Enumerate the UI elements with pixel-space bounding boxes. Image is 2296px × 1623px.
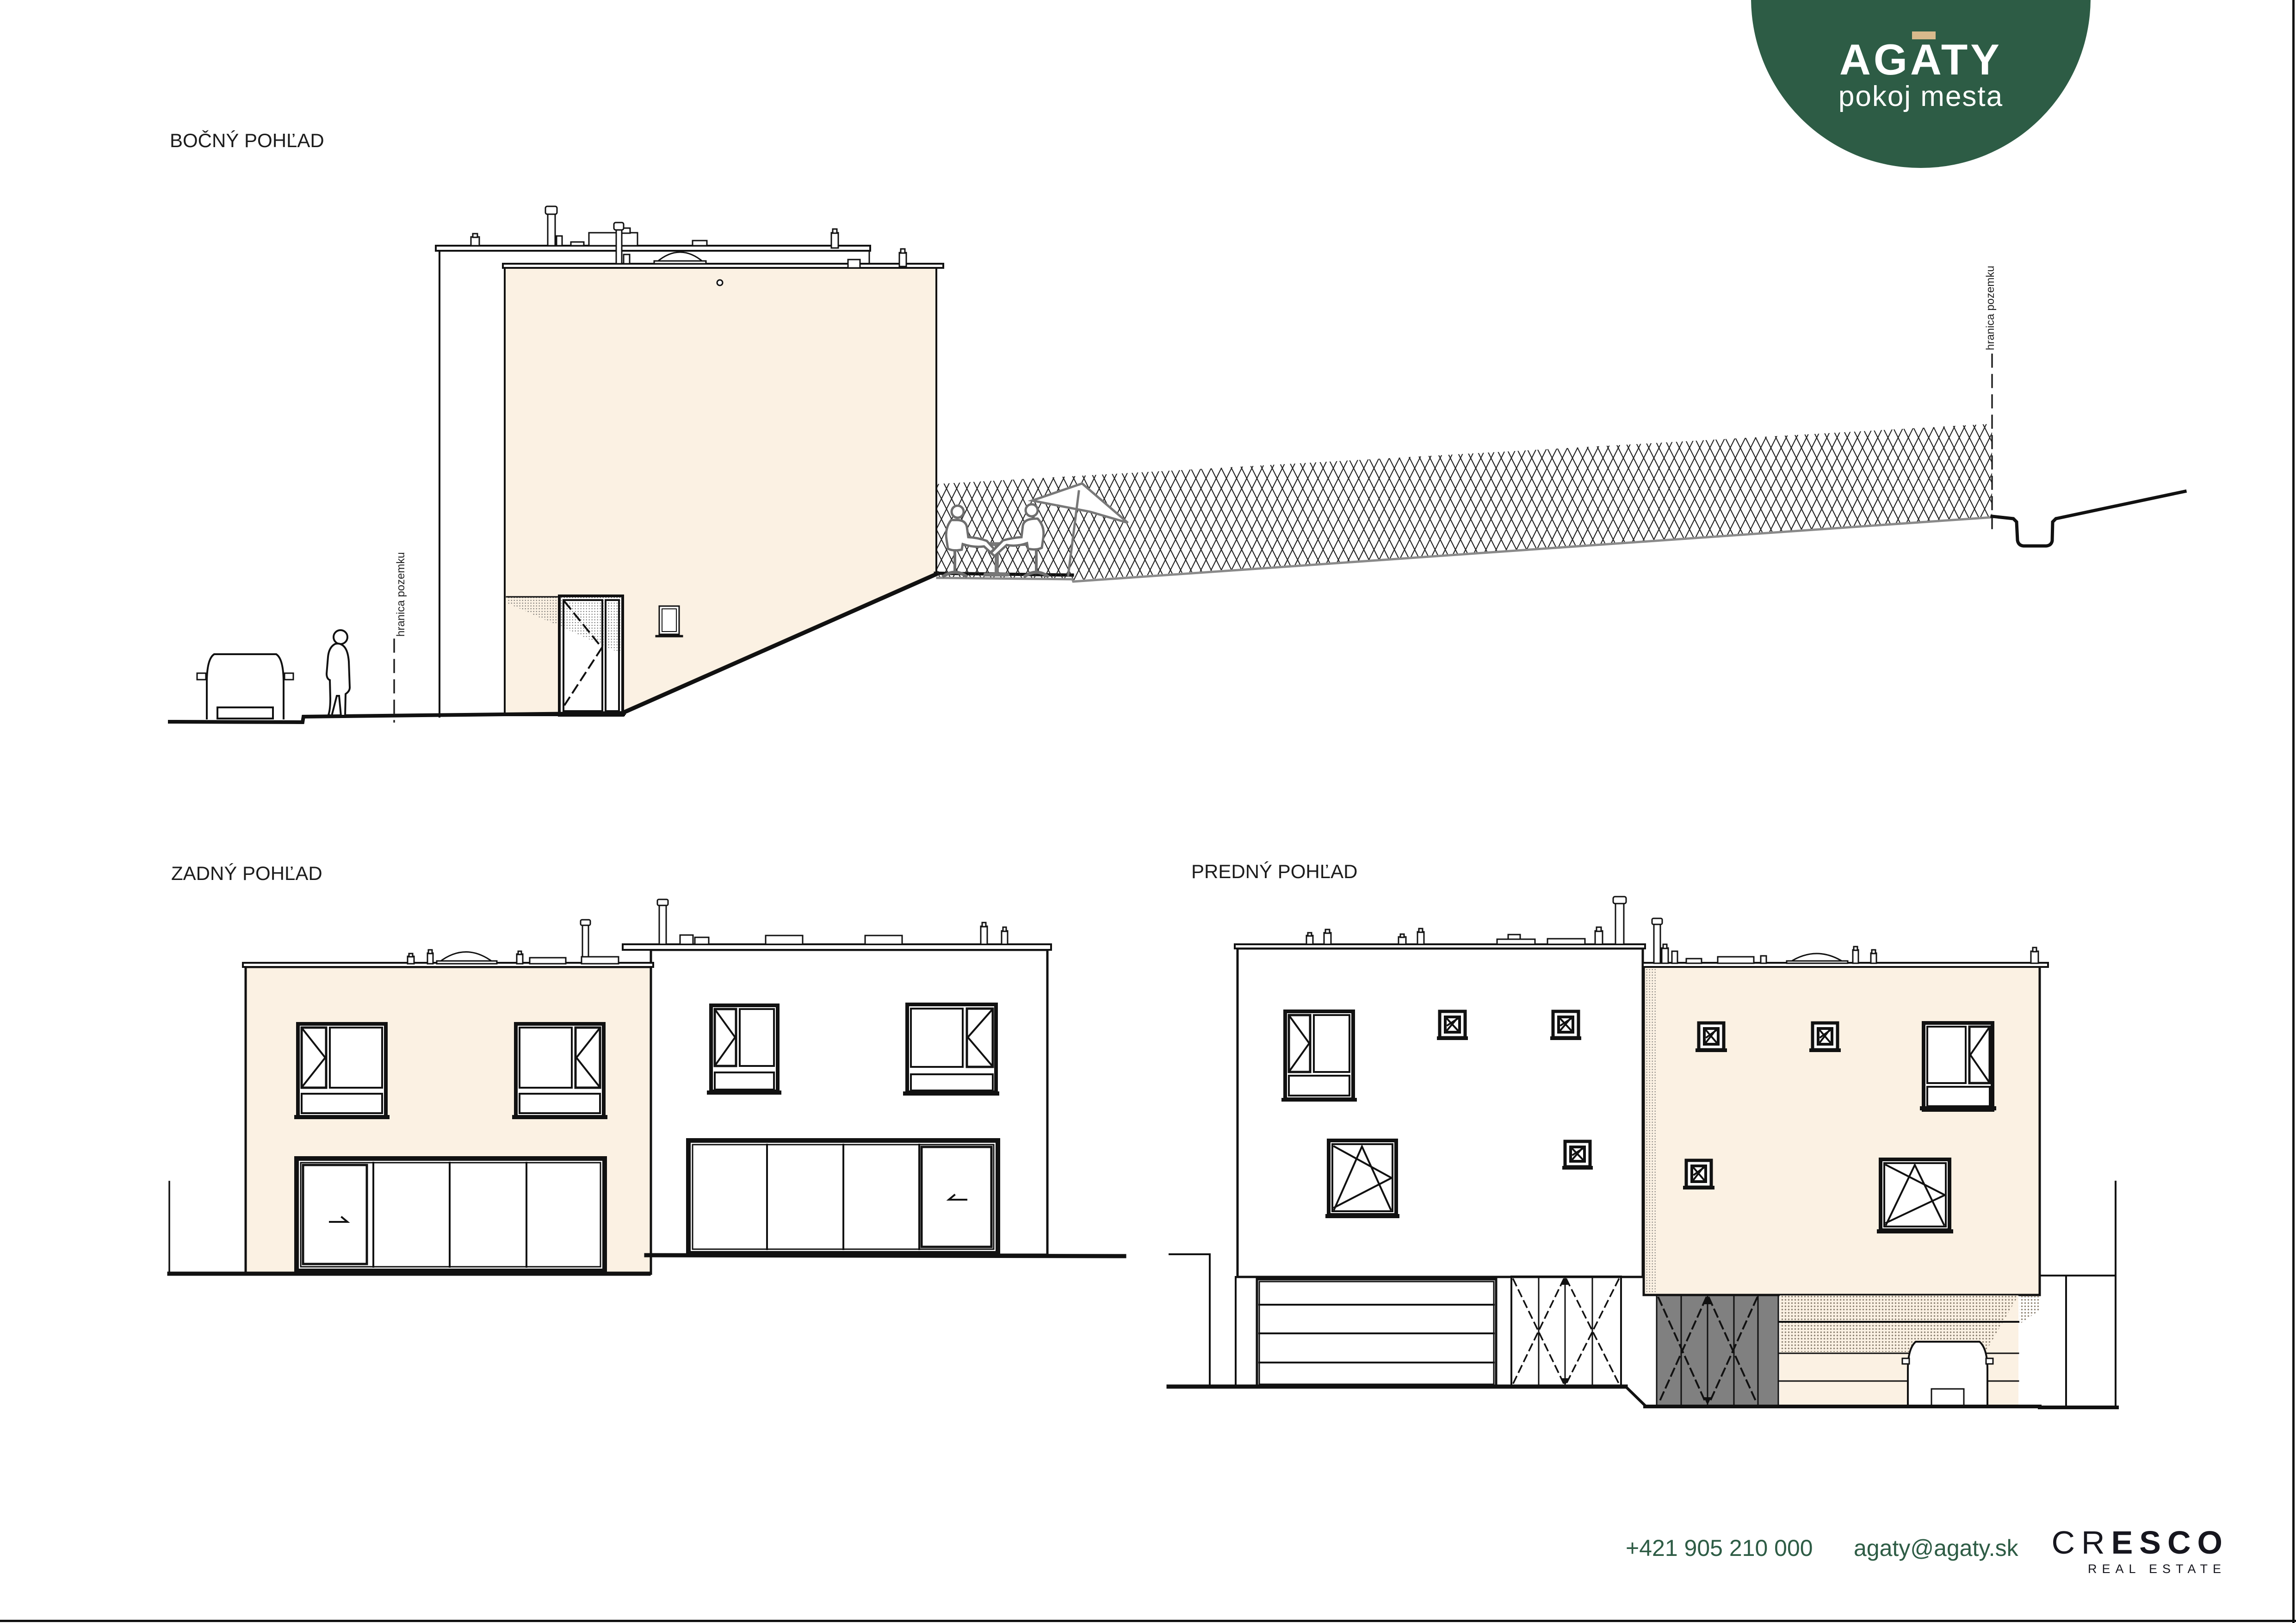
svg-text:hranica pozemku: hranica pozemku [1984,266,1997,350]
svg-text:REAL ESTATE: REAL ESTATE [2088,1562,2226,1576]
svg-text:agaty@agaty.sk: agaty@agaty.sk [1854,1535,2019,1561]
svg-text:BOČNÝ POHĽAD: BOČNÝ POHĽAD [170,130,324,151]
svg-text:ZADNÝ POHĽAD: ZADNÝ POHĽAD [171,862,322,884]
svg-text:+421 905 210 000: +421 905 210 000 [1626,1535,1813,1561]
svg-text:CRESCO: CRESCO [2052,1524,2229,1561]
svg-text:AGATY: AGATY [1839,35,2002,84]
svg-text:pokoj mesta: pokoj mesta [1838,81,2003,112]
svg-text:hranica pozemku: hranica pozemku [395,552,407,637]
svg-text:PREDNÝ POHĽAD: PREDNÝ POHĽAD [1191,861,1357,882]
